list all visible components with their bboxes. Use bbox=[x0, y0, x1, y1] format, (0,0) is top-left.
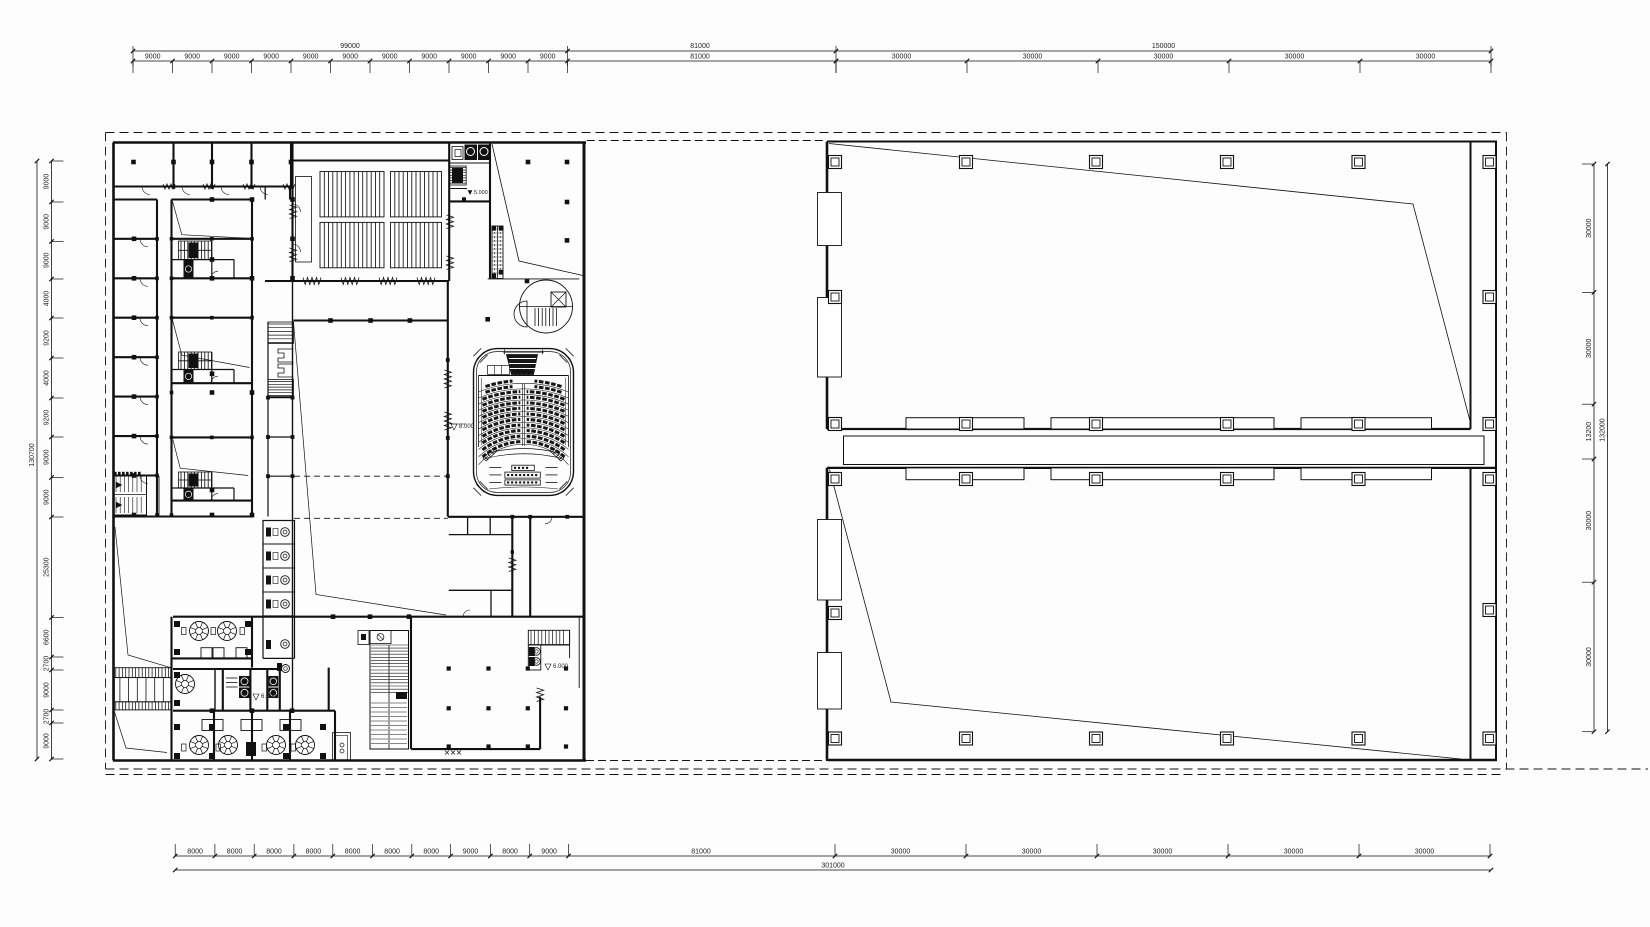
svg-text:30000: 30000 bbox=[1022, 849, 1042, 856]
svg-text:9000: 9000 bbox=[44, 733, 51, 749]
svg-text:9000: 9000 bbox=[500, 54, 516, 61]
svg-text:8000: 8000 bbox=[345, 849, 361, 856]
svg-text:30000: 30000 bbox=[891, 849, 911, 856]
svg-text:25300: 25300 bbox=[44, 557, 51, 577]
svg-text:30000: 30000 bbox=[1586, 218, 1593, 238]
svg-text:9000: 9000 bbox=[44, 214, 51, 230]
svg-text:30000: 30000 bbox=[1586, 647, 1593, 667]
svg-text:2700: 2700 bbox=[44, 656, 51, 672]
svg-text:9000: 9000 bbox=[463, 849, 479, 856]
svg-text:2700: 2700 bbox=[44, 709, 51, 725]
svg-text:9000: 9000 bbox=[44, 174, 51, 190]
svg-text:30000: 30000 bbox=[1586, 511, 1593, 531]
svg-text:6.000: 6.000 bbox=[553, 664, 569, 670]
svg-text:9000: 9000 bbox=[382, 54, 398, 61]
svg-text:6.000: 6.000 bbox=[261, 694, 277, 700]
svg-text:9000: 9000 bbox=[145, 54, 161, 61]
svg-text:4000: 4000 bbox=[44, 370, 51, 386]
svg-text:9000: 9000 bbox=[44, 489, 51, 505]
svg-text:8000: 8000 bbox=[187, 849, 203, 856]
svg-text:30000: 30000 bbox=[1284, 849, 1304, 856]
svg-text:9000: 9000 bbox=[303, 54, 319, 61]
svg-text:30000: 30000 bbox=[1285, 54, 1305, 61]
svg-text:30000: 30000 bbox=[1154, 54, 1174, 61]
svg-text:8000: 8000 bbox=[384, 849, 400, 856]
svg-text:130700: 130700 bbox=[29, 443, 36, 466]
svg-text:30000: 30000 bbox=[1416, 54, 1436, 61]
svg-text:5.000: 5.000 bbox=[474, 190, 488, 196]
svg-text:9000: 9000 bbox=[184, 54, 200, 61]
svg-text:9000: 9000 bbox=[224, 54, 240, 61]
svg-text:9000: 9000 bbox=[263, 54, 279, 61]
svg-text:6600: 6600 bbox=[44, 629, 51, 645]
svg-text:301000: 301000 bbox=[821, 863, 844, 870]
svg-text:9000: 9000 bbox=[44, 682, 51, 698]
svg-text:8000: 8000 bbox=[306, 849, 322, 856]
svg-text:99000: 99000 bbox=[340, 43, 360, 50]
svg-text:81000: 81000 bbox=[690, 43, 710, 50]
svg-text:9000: 9000 bbox=[342, 54, 358, 61]
svg-text:81000: 81000 bbox=[690, 54, 710, 61]
svg-text:150000: 150000 bbox=[1152, 43, 1175, 50]
svg-text:81000: 81000 bbox=[691, 849, 711, 856]
svg-text:8000: 8000 bbox=[502, 849, 518, 856]
svg-text:30000: 30000 bbox=[1153, 849, 1173, 856]
svg-text:8000: 8000 bbox=[266, 849, 282, 856]
svg-text:4000: 4000 bbox=[44, 291, 51, 307]
svg-text:30000: 30000 bbox=[892, 54, 912, 61]
svg-text:9000: 9000 bbox=[540, 54, 556, 61]
svg-text:9000: 9000 bbox=[461, 54, 477, 61]
svg-text:9000: 9000 bbox=[541, 849, 557, 856]
svg-text:30000: 30000 bbox=[1586, 338, 1593, 358]
svg-text:9200: 9200 bbox=[44, 330, 51, 346]
svg-text:9000: 9000 bbox=[44, 252, 51, 268]
svg-text:8000: 8000 bbox=[227, 849, 243, 856]
svg-text:30000: 30000 bbox=[1023, 54, 1043, 61]
svg-text:30000: 30000 bbox=[1415, 849, 1435, 856]
svg-text:9000: 9000 bbox=[421, 54, 437, 61]
svg-text:132000: 132000 bbox=[1600, 418, 1607, 441]
svg-text:8.000: 8.000 bbox=[459, 424, 475, 430]
svg-text:9000: 9000 bbox=[44, 449, 51, 465]
svg-text:8000: 8000 bbox=[423, 849, 439, 856]
svg-text:9200: 9200 bbox=[44, 410, 51, 426]
svg-text:13200: 13200 bbox=[1586, 422, 1593, 442]
